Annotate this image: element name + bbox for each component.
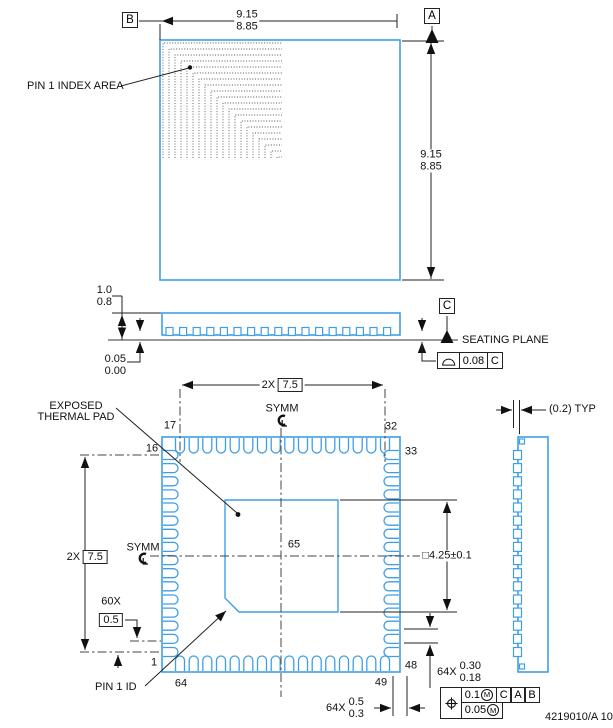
lead <box>384 542 399 551</box>
position-tol-1: 0.1 M <box>461 687 497 703</box>
lead <box>163 503 178 512</box>
lead <box>384 634 399 643</box>
pin-number-1: 1 <box>151 658 157 669</box>
lead <box>514 490 522 499</box>
lead <box>340 438 349 453</box>
lead <box>384 595 399 604</box>
lead <box>384 582 399 591</box>
lead <box>384 516 399 525</box>
lead <box>180 328 187 336</box>
bottom-view-leads-top <box>176 438 390 453</box>
pin-number-33: 33 <box>405 447 417 458</box>
lead <box>514 529 522 538</box>
lead <box>163 621 178 630</box>
lead <box>514 477 522 486</box>
dim-body-height: 1.0 0.8 <box>92 285 112 308</box>
lead <box>353 438 362 453</box>
lead <box>288 328 295 336</box>
dim-top-height: 9.15 8.85 <box>418 150 443 173</box>
stipple-contour <box>187 67 282 158</box>
lead <box>299 438 308 453</box>
drawing-number: 4219010/A 10 <box>545 712 613 723</box>
stipple-contour <box>265 145 282 158</box>
pin1-id-label: PIN 1 ID <box>95 682 137 693</box>
lead <box>514 621 522 630</box>
lead <box>234 328 241 336</box>
mmc-modifier-icon: M <box>487 704 499 716</box>
lead <box>384 477 399 486</box>
side-view-leads <box>166 328 391 336</box>
lead <box>520 439 525 444</box>
detail-view-leads <box>514 439 525 669</box>
exposed-pad-label: EXPOSED THERMAL PAD <box>36 401 116 423</box>
centerline-icon <box>140 554 148 564</box>
pin-number-16: 16 <box>146 444 158 455</box>
pin1-index-leader <box>121 68 189 86</box>
lead <box>163 516 178 525</box>
lead <box>258 656 267 671</box>
lead <box>302 328 309 336</box>
lead <box>258 438 267 453</box>
datum-c: C <box>439 298 455 314</box>
lead <box>340 656 349 671</box>
symm-label-top: SYMM <box>266 404 299 415</box>
lead <box>326 438 335 453</box>
lead <box>520 664 525 669</box>
lead <box>514 569 522 578</box>
pitch-qty: 60X <box>101 597 121 608</box>
lead <box>514 582 522 591</box>
datum-a-arrow <box>426 29 439 43</box>
detail-view-body <box>518 437 548 672</box>
lead <box>271 656 280 671</box>
position-tolerance-frame: 0.1 M C A B 0.05 M <box>440 687 540 719</box>
lead <box>384 464 399 473</box>
mechanical-drawing-canvas: PIN 1 INDEX AREA B A 9.15 8.85 9.15 8.85… <box>0 0 613 728</box>
lead <box>217 438 226 453</box>
pin-number-48: 48 <box>405 661 417 672</box>
lead <box>271 438 280 453</box>
top-view-body <box>160 40 400 280</box>
lead <box>370 328 377 336</box>
stipple-contour <box>211 91 282 158</box>
dim-span-top: 2X 7.5 <box>260 378 305 392</box>
lead <box>384 328 391 336</box>
stipple-contour <box>271 151 282 158</box>
lead <box>384 608 399 617</box>
lead <box>514 503 522 512</box>
mmc-modifier-icon: M <box>481 689 493 701</box>
lead <box>384 621 399 630</box>
lead <box>163 569 178 578</box>
pin1-index-area-texture <box>163 43 282 158</box>
datum-c-arrow <box>441 330 454 343</box>
stipple-contour <box>223 103 282 158</box>
lead <box>163 477 178 486</box>
lead <box>514 608 522 617</box>
lead <box>193 328 200 336</box>
lead <box>316 328 323 336</box>
pad-size-dim: □4.25±0.1 <box>420 551 473 562</box>
lead <box>176 656 185 671</box>
pad-pin-number: 65 <box>286 540 302 551</box>
fcf-datum-c: C <box>496 687 512 703</box>
position-tolerance-icon <box>440 687 462 719</box>
lead-length-dim: 64X 0.5 0.3 <box>326 697 364 720</box>
lead <box>514 648 522 657</box>
lead <box>356 328 363 336</box>
drawing-linework <box>0 0 613 728</box>
lead <box>189 438 198 453</box>
lead <box>248 328 255 336</box>
stipple-contour <box>181 61 282 158</box>
lead <box>244 656 253 671</box>
stipple-contour <box>247 127 282 158</box>
lead <box>514 464 522 473</box>
seating-plane-label: SEATING PLANE <box>462 335 549 346</box>
stipple-contour <box>175 55 282 158</box>
lead <box>163 464 178 473</box>
lead <box>244 438 253 453</box>
stipple-contour <box>217 97 282 158</box>
lead <box>299 656 308 671</box>
stipple-contour <box>229 109 282 158</box>
lead <box>163 634 178 643</box>
stipple-contour <box>199 79 282 158</box>
lead <box>514 556 522 565</box>
lead <box>163 529 178 538</box>
lead <box>261 328 268 336</box>
stipple-contour <box>169 49 282 158</box>
flatness-frame: 0.08 C <box>437 352 503 369</box>
lead <box>384 648 399 657</box>
centerline-icon <box>279 416 287 426</box>
lead <box>514 542 522 551</box>
lead <box>326 656 335 671</box>
lead <box>207 328 214 336</box>
lead <box>381 656 390 671</box>
flatness-datum: C <box>487 352 503 369</box>
lead <box>329 328 336 336</box>
lead <box>514 634 522 643</box>
lead <box>343 328 350 336</box>
dim-top-width: 9.15 8.85 <box>234 10 259 33</box>
lead <box>384 529 399 538</box>
lead <box>312 656 321 671</box>
stipple-contour <box>277 157 282 158</box>
lead <box>220 328 227 336</box>
lead <box>217 656 226 671</box>
pin1-id-leader <box>145 611 226 686</box>
lead <box>163 595 178 604</box>
lead <box>384 451 399 460</box>
pin1-index-dot <box>188 65 192 69</box>
position-tol-2: 0.05 M <box>461 702 503 719</box>
dim-span-left: 2X 7.5 <box>65 550 110 564</box>
pin-number-32: 32 <box>385 422 397 433</box>
lead <box>275 328 282 336</box>
datum-b: B <box>122 12 138 28</box>
pin-number-17: 17 <box>164 421 176 432</box>
lead <box>163 556 178 565</box>
lead <box>514 516 522 525</box>
lead <box>166 328 173 336</box>
lead <box>514 451 522 460</box>
fcf-datum-b: B <box>524 687 539 703</box>
lead <box>189 656 198 671</box>
bottom-view-leads-bottom <box>176 656 390 671</box>
dim-standoff: 0.05 0.00 <box>100 354 126 377</box>
flatness-icon <box>437 352 460 369</box>
lead <box>384 503 399 512</box>
datum-a: A <box>424 8 440 24</box>
lead <box>163 542 178 551</box>
lead <box>230 656 239 671</box>
lead <box>285 656 294 671</box>
lead <box>384 556 399 565</box>
lead <box>285 438 294 453</box>
lead <box>230 438 239 453</box>
lead <box>384 569 399 578</box>
lead <box>163 582 178 591</box>
lead-width-dim: 64X 0.30 0.18 <box>437 661 481 684</box>
lead <box>353 656 362 671</box>
lead <box>163 490 178 499</box>
lead-offset-dim: (0.2) TYP <box>549 404 596 415</box>
pin-number-49: 49 <box>375 678 387 689</box>
lead <box>203 438 212 453</box>
lead <box>367 438 376 453</box>
lead <box>163 648 178 657</box>
lead <box>514 595 522 604</box>
lead <box>203 656 212 671</box>
flatness-value: 0.08 <box>459 352 488 369</box>
lead <box>163 608 178 617</box>
pitch-value: 0.5 <box>99 613 123 627</box>
symm-label-left: SYMM <box>127 543 160 554</box>
stipple-contour <box>259 139 282 158</box>
pin-number-64: 64 <box>175 679 187 690</box>
bottom-view-leads-right <box>384 451 399 657</box>
pin1-index-area-label: PIN 1 INDEX AREA <box>27 81 124 92</box>
bottom-view-leads-left <box>163 451 178 657</box>
thermal-pad-dot <box>236 512 241 517</box>
stipple-contour <box>253 133 282 158</box>
lead <box>384 490 399 499</box>
fcf-datum-a: A <box>510 687 525 703</box>
lead <box>367 656 376 671</box>
lead <box>312 438 321 453</box>
